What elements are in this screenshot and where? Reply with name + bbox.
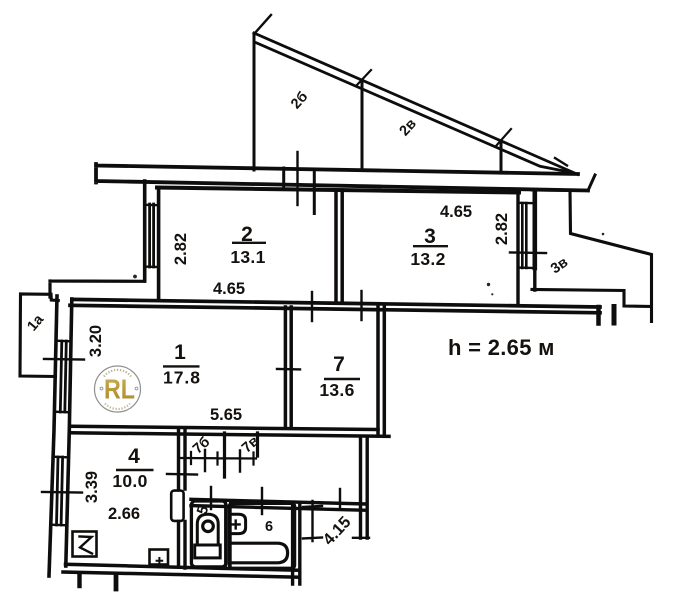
- svg-text:h = 2.65 м: h = 2.65 м: [448, 335, 555, 360]
- svg-text:1а: 1а: [24, 311, 47, 334]
- svg-text:4: 4: [128, 445, 140, 468]
- svg-text:13.1: 13.1: [230, 247, 265, 267]
- svg-text:3.20: 3.20: [87, 325, 105, 357]
- svg-text:2.82: 2.82: [172, 233, 190, 265]
- svg-text:10.0: 10.0: [112, 471, 147, 491]
- svg-text:2.82: 2.82: [493, 213, 511, 245]
- svg-text:17.8: 17.8: [163, 368, 201, 388]
- svg-text:5.65: 5.65: [210, 406, 242, 424]
- svg-text:2в: 2в: [397, 116, 420, 139]
- svg-text:7: 7: [333, 353, 345, 376]
- svg-text:1: 1: [174, 341, 186, 364]
- svg-text:3: 3: [424, 225, 436, 248]
- svg-text:7б: 7б: [190, 434, 213, 457]
- svg-text:6: 6: [265, 519, 273, 535]
- svg-text:3.39: 3.39: [83, 471, 101, 503]
- svg-text:13.6: 13.6: [319, 380, 354, 400]
- svg-text:3в: 3в: [548, 254, 571, 277]
- svg-text:2.66: 2.66: [108, 505, 140, 523]
- svg-text:RL: RL: [104, 374, 135, 405]
- svg-text:4.65: 4.65: [213, 280, 245, 298]
- svg-text:4.15: 4.15: [319, 513, 354, 549]
- svg-text:2б: 2б: [288, 89, 311, 112]
- svg-text:13.2: 13.2: [410, 249, 445, 269]
- svg-text:4.65: 4.65: [440, 203, 472, 221]
